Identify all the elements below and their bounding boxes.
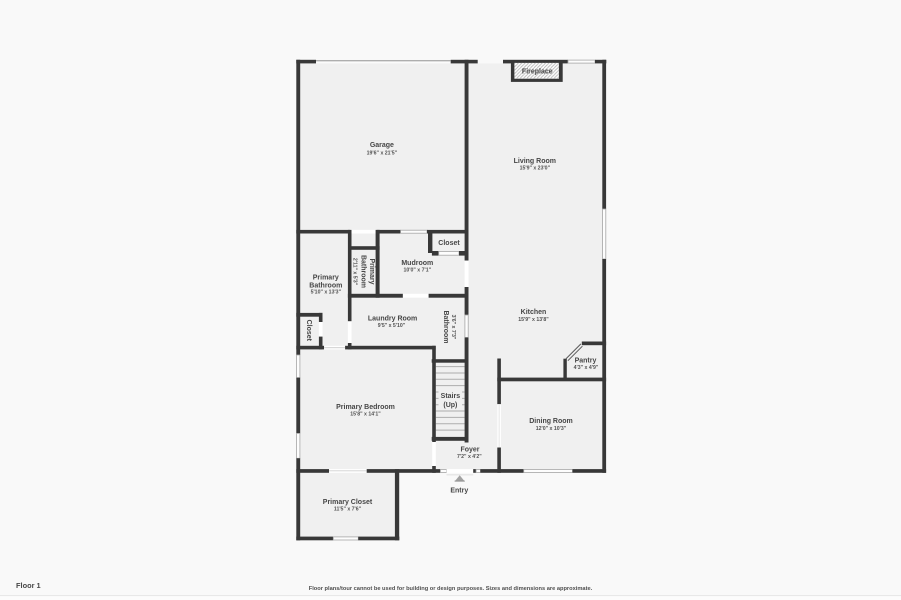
svg-text:15'9" x 23'0": 15'9" x 23'0" (520, 166, 551, 172)
svg-text:Entry: Entry (450, 487, 468, 494)
svg-text:11'5" x 7'6": 11'5" x 7'6" (334, 507, 362, 513)
svg-text:Floor plans/tour cannot be use: Floor plans/tour cannot be used for buil… (309, 586, 593, 592)
svg-text:15'8" x 14'1": 15'8" x 14'1" (350, 412, 381, 418)
svg-text:Foyer: Foyer (460, 447, 479, 454)
svg-text:4'3" x 4'9": 4'3" x 4'9" (574, 365, 599, 371)
svg-text:Primary: Primary (313, 274, 339, 281)
svg-text:5'10" x 13'3": 5'10" x 13'3" (311, 290, 342, 296)
svg-text:Primary: Primary (368, 258, 375, 284)
svg-text:Garage: Garage (370, 142, 394, 149)
svg-text:7'2" x 4'2": 7'2" x 4'2" (457, 454, 482, 460)
svg-text:Stairs: Stairs (441, 393, 461, 400)
svg-text:Laundry Room: Laundry Room (368, 316, 417, 323)
svg-text:Dining Room: Dining Room (529, 418, 573, 425)
svg-text:Pantry: Pantry (575, 357, 597, 364)
svg-text:Closet: Closet (305, 320, 312, 342)
svg-text:Mudroom: Mudroom (401, 260, 433, 267)
svg-text:Primary Bedroom: Primary Bedroom (336, 404, 395, 411)
svg-text:10'0" x 7'1": 10'0" x 7'1" (404, 267, 432, 273)
svg-text:Primary Closet: Primary Closet (323, 499, 373, 506)
svg-text:Bathroom: Bathroom (442, 310, 449, 343)
svg-text:2'11" x 5'3": 2'11" x 5'3" (352, 258, 358, 286)
svg-text:12'0" x 10'3": 12'0" x 10'3" (536, 426, 567, 432)
svg-text:9'5" x 5'10": 9'5" x 5'10" (378, 323, 406, 329)
svg-text:15'9" x 13'8": 15'9" x 13'8" (518, 317, 549, 323)
svg-text:Bathroom: Bathroom (309, 282, 342, 289)
svg-text:Closet: Closet (438, 240, 460, 247)
svg-text:19'6" x 21'5": 19'6" x 21'5" (367, 151, 398, 157)
svg-text:Fireplace: Fireplace (522, 69, 553, 76)
svg-text:Bathroom: Bathroom (359, 255, 366, 288)
svg-text:Floor 1: Floor 1 (16, 581, 41, 590)
svg-text:Living Room: Living Room (514, 158, 556, 165)
svg-text:Kitchen: Kitchen (521, 309, 547, 316)
svg-text:3'6" x 7'3": 3'6" x 7'3" (450, 315, 456, 340)
svg-text:(Up): (Up) (443, 402, 457, 409)
